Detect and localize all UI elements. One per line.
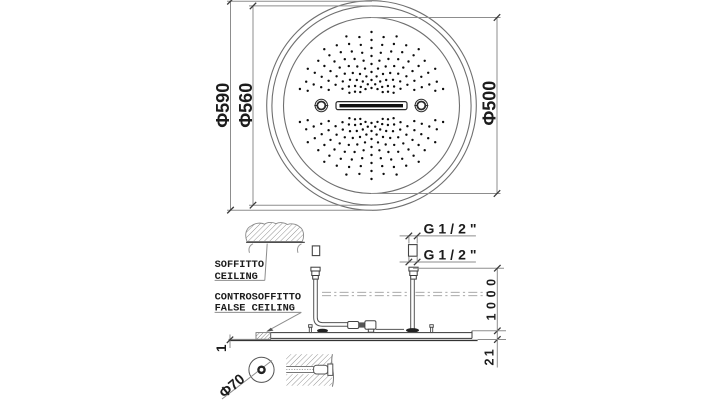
svg-text:1: 1 <box>214 344 229 352</box>
svg-text:Φ560: Φ560 <box>236 83 256 128</box>
svg-text:Φ70: Φ70 <box>217 371 249 400</box>
svg-text:FALSE CEILING: FALSE CEILING <box>215 303 295 315</box>
svg-text:CONTROSOFFITTO: CONTROSOFFITTO <box>215 291 302 303</box>
svg-text:1000: 1000 <box>484 274 498 320</box>
svg-text:SOFFITTO: SOFFITTO <box>215 259 264 271</box>
svg-text:CEILING: CEILING <box>215 271 258 283</box>
svg-text:Φ590: Φ590 <box>213 83 233 128</box>
svg-text:G1/2": G1/2" <box>424 220 481 236</box>
svg-text:21: 21 <box>483 347 497 366</box>
svg-text:G1/2": G1/2" <box>424 247 481 263</box>
svg-text:Φ500: Φ500 <box>479 81 499 126</box>
